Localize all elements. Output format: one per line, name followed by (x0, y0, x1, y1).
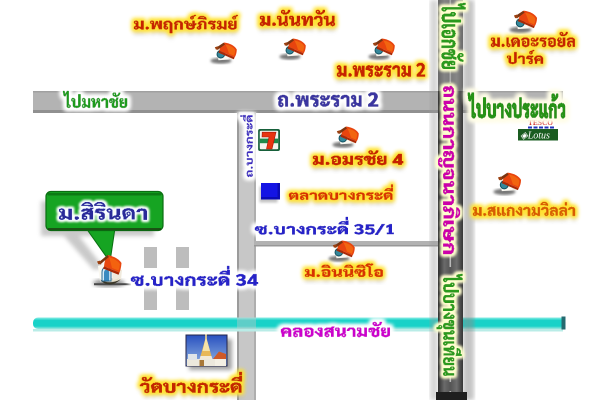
svg-text:TESCO: TESCO (528, 118, 553, 127)
svg-text:◈Lotus: ◈Lotus (520, 131, 550, 142)
